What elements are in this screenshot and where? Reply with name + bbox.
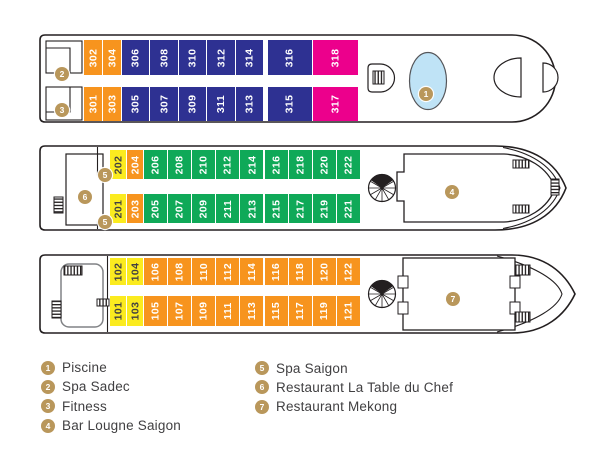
cabin-111: 111	[216, 296, 239, 326]
cabin-117: 117	[289, 296, 312, 326]
cabin-number: 305	[130, 95, 142, 114]
cabin-208: 208	[168, 150, 191, 179]
cabin-311: 311	[207, 87, 234, 121]
deck-marker-3: 3	[55, 103, 69, 117]
cabin-219: 219	[313, 194, 336, 223]
cabin-number: 103	[129, 302, 141, 321]
cabin-number: 222	[342, 155, 354, 174]
doorway	[398, 302, 408, 314]
cabin-318: 318	[313, 40, 358, 75]
cabin-216: 216	[265, 150, 288, 179]
cabin-number: 119	[318, 302, 330, 320]
cabin-214: 214	[240, 150, 263, 179]
cabin-211: 211	[216, 194, 239, 223]
cabin-number: 206	[150, 155, 162, 174]
cabin-number: 212	[222, 155, 234, 174]
legend-label: Spa Sadec	[62, 379, 130, 394]
cabin-205: 205	[144, 194, 167, 223]
cabin-209: 209	[192, 194, 215, 223]
cabin-number: 211	[222, 199, 234, 217]
cabin-213: 213	[240, 194, 263, 223]
cabin-number: 122	[342, 262, 354, 281]
cabin-122: 122	[337, 258, 360, 285]
cabin-number: 221	[342, 199, 354, 218]
stairs-icon	[373, 71, 384, 84]
cabin-210: 210	[192, 150, 215, 179]
bow-structure-small	[543, 63, 558, 92]
legend-label: Piscine	[62, 360, 107, 375]
stairs-icon	[52, 301, 61, 318]
legend-marker-7: 7	[255, 400, 269, 414]
cabin-number: 315	[283, 95, 295, 114]
cabin-number: 107	[174, 302, 186, 321]
cabin-number: 207	[174, 199, 186, 218]
cabin-303: 303	[103, 87, 121, 121]
cabin-115: 115	[265, 296, 288, 326]
cabin-number: 110	[198, 262, 210, 280]
doorway	[510, 276, 520, 288]
cabin-number: 202	[112, 155, 124, 174]
cabin-207: 207	[168, 194, 191, 223]
cabin-number: 217	[294, 199, 306, 218]
cabin-112: 112	[216, 258, 239, 285]
deck-marker-2: 2	[55, 67, 69, 81]
cabin-number: 203	[129, 199, 141, 218]
cabin-307: 307	[150, 87, 177, 121]
cabin-number: 304	[106, 48, 118, 67]
cabin-number: 116	[270, 262, 282, 280]
cabin-number: 115	[270, 302, 282, 320]
legend-marker-1: 1	[41, 361, 55, 375]
cabin-218: 218	[289, 150, 312, 179]
stairs-icon	[54, 197, 63, 213]
cabin-number: 306	[130, 48, 142, 67]
cabin-222: 222	[337, 150, 360, 179]
bench-icon	[515, 312, 530, 322]
legend-item: 1Piscine	[41, 360, 107, 375]
cabin-number: 218	[294, 155, 306, 174]
legend-marker-5: 5	[255, 361, 269, 375]
cabin-number: 111	[222, 302, 234, 320]
cabin-310: 310	[179, 40, 206, 75]
cabin-number: 303	[106, 95, 118, 114]
cabin-315: 315	[268, 87, 312, 121]
cabin-116: 116	[265, 258, 288, 285]
cabin-number: 106	[150, 262, 162, 281]
cabin-number: 215	[270, 199, 282, 218]
cabin-305: 305	[122, 87, 149, 121]
cabin-107: 107	[168, 296, 191, 326]
cabin-206: 206	[144, 150, 167, 179]
cabin-110: 110	[192, 258, 215, 285]
cabin-118: 118	[289, 258, 312, 285]
bench-icon	[513, 160, 529, 168]
pool-shape	[410, 53, 447, 110]
cabin-120: 120	[313, 258, 336, 285]
cabin-108: 108	[168, 258, 191, 285]
cabin-number: 316	[283, 48, 295, 67]
cabin-number: 213	[246, 199, 258, 218]
cabin-number: 301	[87, 95, 99, 114]
cabin-number: 102	[112, 262, 124, 281]
legend-label: Bar Lougne Saigon	[62, 418, 181, 433]
cabin-220: 220	[313, 150, 336, 179]
cabin-number: 307	[158, 95, 170, 114]
legend-item: 2Spa Sadec	[41, 379, 130, 394]
cabin-number: 311	[215, 95, 227, 113]
cabin-number: 117	[294, 302, 306, 320]
cabin-number: 121	[342, 302, 354, 321]
deck-marker-4: 4	[445, 185, 459, 199]
cabin-number: 205	[150, 199, 162, 218]
cabin-306: 306	[122, 40, 149, 75]
stairs-icon	[64, 266, 82, 275]
cabin-number: 220	[318, 155, 330, 174]
bar-lounge-room	[397, 154, 555, 222]
cabin-106: 106	[144, 258, 167, 285]
deck-marker-5: 5	[98, 168, 112, 182]
cabin-109: 109	[192, 296, 215, 326]
cabin-number: 317	[329, 95, 341, 114]
legend-label: Spa Saigon	[276, 361, 348, 376]
bench-icon	[513, 205, 529, 213]
cabin-number: 219	[318, 199, 330, 218]
cabin-number: 312	[215, 48, 227, 67]
cabin-302: 302	[84, 40, 102, 75]
cabin-104: 104	[127, 258, 143, 285]
cabin-301: 301	[84, 87, 102, 121]
cabin-308: 308	[150, 40, 177, 75]
bench-icon	[515, 265, 530, 275]
cabin-119: 119	[313, 296, 336, 326]
cabin-202: 202	[110, 150, 126, 179]
cabin-121: 121	[337, 296, 360, 326]
legend-marker-6: 6	[255, 380, 269, 394]
cabin-number: 214	[246, 155, 258, 174]
deck-marker-5: 5	[98, 215, 112, 229]
deck-marker-7: 7	[446, 292, 460, 306]
deck-marker-6: 6	[78, 190, 92, 204]
cabin-217: 217	[289, 194, 312, 223]
cabin-number: 310	[186, 48, 198, 67]
cabin-103: 103	[127, 296, 143, 326]
cabin-number: 302	[87, 48, 99, 67]
cabin-101: 101	[110, 296, 126, 326]
cabin-317: 317	[313, 87, 358, 121]
ship-deck-plan: 3023043063083103123143163183013033053073…	[0, 0, 616, 466]
restaurant-mekong-room	[403, 258, 515, 330]
doorway	[398, 276, 408, 288]
spiral-staircase-icon	[369, 281, 396, 308]
legend-item: 3Fitness	[41, 399, 107, 414]
cabin-number: 313	[243, 95, 255, 114]
bench-icon	[551, 179, 559, 195]
cabin-102: 102	[110, 258, 126, 285]
cabin-number: 120	[318, 262, 330, 281]
cabin-number: 318	[329, 48, 341, 67]
cabin-203: 203	[127, 194, 143, 223]
cabin-number: 204	[129, 155, 141, 174]
cabin-314: 314	[236, 40, 263, 75]
cabin-number: 309	[186, 95, 198, 114]
legend-marker-4: 4	[41, 419, 55, 433]
legend-label: Fitness	[62, 399, 107, 414]
cabin-number: 112	[222, 262, 234, 280]
legend-label: Restaurant Mekong	[276, 399, 397, 414]
legend-item: 6Restaurant La Table du Chef	[255, 380, 453, 395]
legend-marker-3: 3	[41, 399, 55, 413]
cabin-number: 105	[150, 302, 162, 321]
cabin-304: 304	[103, 40, 121, 75]
cabin-221: 221	[337, 194, 360, 223]
cabin-number: 216	[270, 155, 282, 174]
cabin-number: 210	[198, 155, 210, 174]
cabin-105: 105	[144, 296, 167, 326]
cabin-201: 201	[110, 194, 126, 223]
cabin-number: 118	[294, 262, 306, 280]
deck-marker-1: 1	[419, 87, 433, 101]
cabin-number: 314	[243, 48, 255, 67]
legend-item: 4Bar Lougne Saigon	[41, 418, 181, 433]
cabin-number: 209	[198, 199, 210, 218]
cabin-number: 108	[174, 262, 186, 281]
legend-item: 5Spa Saigon	[255, 361, 348, 376]
cabin-number: 113	[246, 302, 258, 320]
cabin-number: 104	[129, 262, 141, 281]
stairs-icon	[97, 299, 109, 306]
cabin-204: 204	[127, 150, 143, 179]
legend-marker-2: 2	[41, 380, 55, 394]
cabin-number: 101	[112, 302, 124, 321]
cabin-number: 208	[174, 155, 186, 174]
cabin-212: 212	[216, 150, 239, 179]
cabin-309: 309	[179, 87, 206, 121]
legend-label: Restaurant La Table du Chef	[276, 380, 453, 395]
cabin-316: 316	[268, 40, 312, 75]
cabin-215: 215	[265, 194, 288, 223]
cabin-number: 201	[112, 199, 124, 218]
cabin-313: 313	[236, 87, 263, 121]
spiral-staircase-icon	[369, 175, 396, 202]
cabin-number: 109	[198, 302, 210, 321]
cabin-113: 113	[240, 296, 263, 326]
cabin-number: 114	[246, 262, 258, 280]
cabin-114: 114	[240, 258, 263, 285]
cabin-312: 312	[207, 40, 234, 75]
legend-item: 7Restaurant Mekong	[255, 399, 397, 414]
cabin-number: 308	[158, 48, 170, 67]
